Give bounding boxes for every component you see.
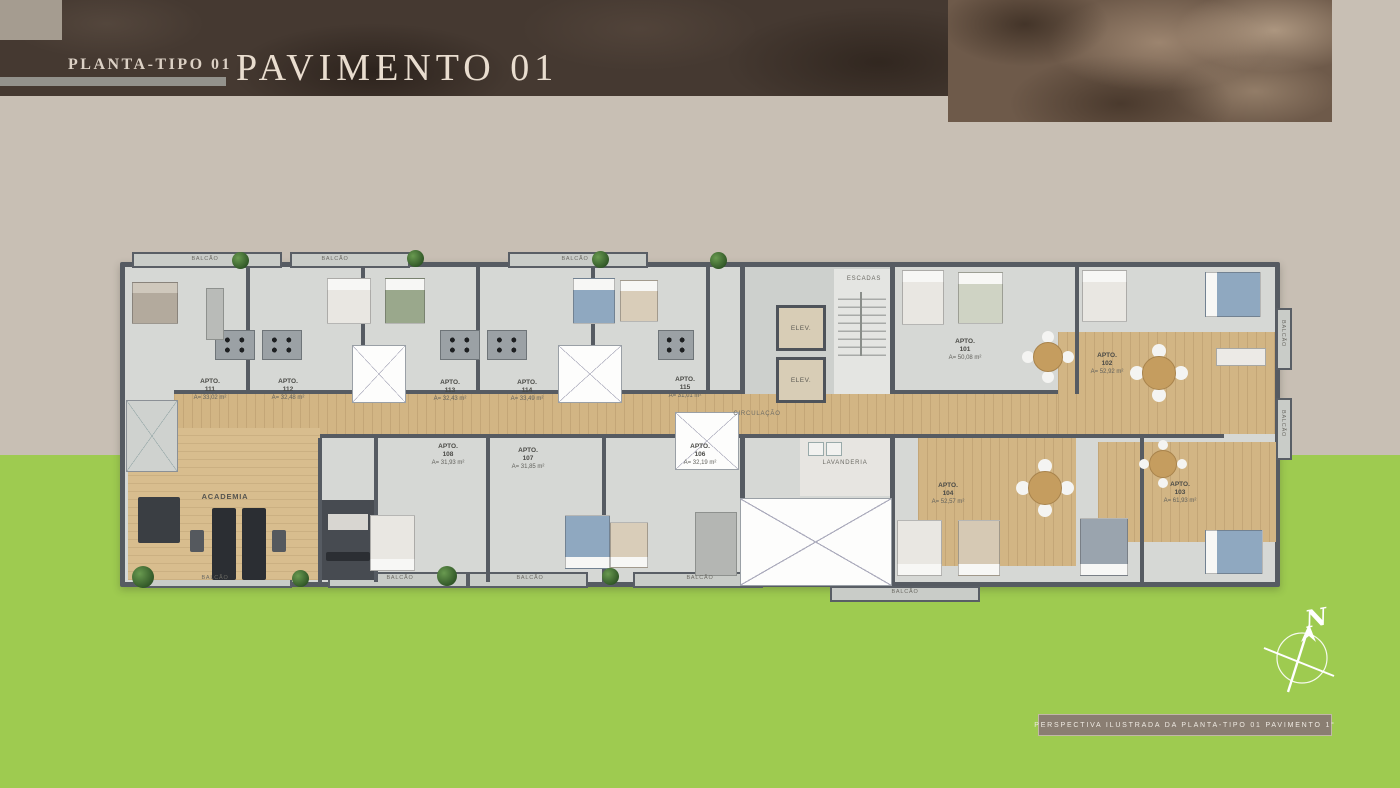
- plant: [132, 566, 154, 588]
- gym-bench: [190, 530, 204, 552]
- caption-text: PERSPECTIVA ILUSTRADA DA PLANTA-TIPO 01 …: [1034, 722, 1336, 729]
- dining-table: [1142, 356, 1176, 390]
- dining-table: [1033, 342, 1063, 372]
- bed: [1082, 270, 1127, 322]
- apartment-label-108: APTO. 108 A= 31,93 m²: [420, 443, 476, 468]
- wall-core-right-top: [890, 267, 895, 394]
- apartment-label-101: APTO. 101 A= 50,08 m²: [937, 338, 993, 363]
- bed: [1080, 518, 1128, 576]
- elevator-label: ELEV.: [791, 377, 811, 384]
- bed: [610, 522, 648, 568]
- bed: [327, 278, 371, 324]
- balcony-label: BALCÃO: [386, 575, 413, 581]
- elevator-2: ELEV.: [776, 357, 826, 403]
- floor-plan: ELEV. ELEV. ESCADAS LAVANDERIA: [118, 252, 1282, 602]
- gym-rack: [138, 497, 180, 543]
- balcony-label: BALCÃO: [516, 575, 543, 581]
- kitchen-counter: [440, 330, 480, 360]
- balcony-label: BALCÃO: [891, 589, 918, 595]
- kitchen-counter: [487, 330, 527, 360]
- bed: [958, 520, 1000, 576]
- dining-table: [1028, 471, 1062, 505]
- washer: [808, 442, 824, 456]
- circulation-label: CIRCULAÇÃO: [733, 411, 780, 417]
- sofa: [695, 512, 737, 576]
- balcony-top-2: [290, 252, 410, 268]
- bed: [620, 280, 658, 322]
- wall: [1140, 438, 1144, 582]
- balcony-label: BALCÃO: [1280, 320, 1286, 347]
- apartment-label-112: APTO. 112 A= 32,48 m²: [260, 378, 316, 403]
- balcony-label: BALCÃO: [191, 256, 218, 262]
- bed: [1205, 272, 1261, 317]
- laundry-label: LAVANDERIA: [822, 460, 867, 466]
- shaft-void: [352, 345, 406, 403]
- massage-table: [328, 514, 368, 530]
- dining-table: [1149, 450, 1177, 478]
- massage-room: [322, 500, 374, 580]
- apartment-label-103: APTO. 103 A= 61,93 m²: [1152, 481, 1208, 506]
- bed: [565, 515, 610, 569]
- sofa: [1216, 348, 1266, 366]
- bed: [958, 272, 1003, 324]
- header-corner-block: [0, 0, 62, 40]
- bed: [132, 282, 178, 324]
- elevator-1: ELEV.: [776, 305, 826, 351]
- apartment-label-102: APTO. 102 A= 52,92 m²: [1079, 352, 1135, 377]
- washer: [826, 442, 842, 456]
- kitchen-counter: [658, 330, 694, 360]
- svg-text:N: N: [1302, 601, 1331, 634]
- sofa: [206, 288, 224, 340]
- balcony-label: BALCÃO: [1280, 410, 1286, 437]
- treadmill: [242, 508, 266, 580]
- gym-bench: [272, 530, 286, 552]
- plant: [232, 252, 249, 269]
- plant: [710, 252, 727, 269]
- bed: [902, 270, 944, 325]
- stairs-rail: [860, 292, 862, 356]
- plant: [437, 566, 457, 586]
- balcony-label: BALCÃO: [686, 575, 713, 581]
- header-texture-rock: [948, 0, 1332, 122]
- bed: [385, 278, 425, 324]
- caption-bar: PERSPECTIVA ILUSTRADA DA PLANTA-TIPO 01 …: [1038, 714, 1332, 736]
- plant: [592, 251, 609, 268]
- plant: [602, 568, 619, 585]
- entry-terrace: [126, 400, 178, 472]
- balcony-label: BALCÃO: [201, 575, 228, 581]
- apartment-label-107: APTO. 107 A= 31,85 m²: [500, 447, 556, 472]
- balcony-label: BALCÃO: [561, 256, 588, 262]
- page-title: PAVIMENTO 01: [236, 46, 558, 90]
- plan-type-label: PLANTA-TIPO 01: [68, 56, 232, 74]
- central-void: [740, 498, 892, 586]
- apartment-label-115: APTO. 115 A= 31,01 m²: [657, 376, 713, 401]
- stairs-label: ESCADAS: [847, 276, 881, 282]
- barbell: [326, 552, 370, 561]
- balcony-label: BALCÃO: [321, 256, 348, 262]
- apartment-label-113: APTO. 113 A= 32,43 m²: [422, 379, 478, 404]
- wall: [706, 267, 710, 394]
- page: { "header": { "plan_type_label": "PLANTA…: [0, 0, 1400, 788]
- compass: N: [1250, 598, 1360, 708]
- treadmill: [212, 508, 236, 580]
- elevator-label: ELEV.: [791, 325, 811, 332]
- bed: [370, 515, 415, 571]
- compass-icon: N: [1250, 598, 1360, 708]
- bed: [897, 520, 942, 576]
- wall-core-left-bottom: [740, 438, 745, 498]
- apartment-label-104: APTO. 104 A= 52,57 m²: [920, 482, 976, 507]
- title-underline-bar: [0, 77, 226, 86]
- kitchen-counter: [262, 330, 302, 360]
- apartment-label-114: APTO. 114 A= 33,49 m²: [499, 379, 555, 404]
- bed: [573, 278, 615, 324]
- plant: [292, 570, 309, 587]
- shaft-void: [558, 345, 622, 403]
- wall: [486, 438, 490, 582]
- apartment-label-111: APTO. 111 A= 33,02 m²: [182, 378, 238, 403]
- apartment-label-106: APTO. 106 A= 32,19 m²: [672, 443, 728, 468]
- gym-label: ACADEMIA: [202, 492, 249, 501]
- plant: [407, 250, 424, 267]
- stairs-treads: [838, 292, 886, 356]
- bed: [1205, 530, 1263, 574]
